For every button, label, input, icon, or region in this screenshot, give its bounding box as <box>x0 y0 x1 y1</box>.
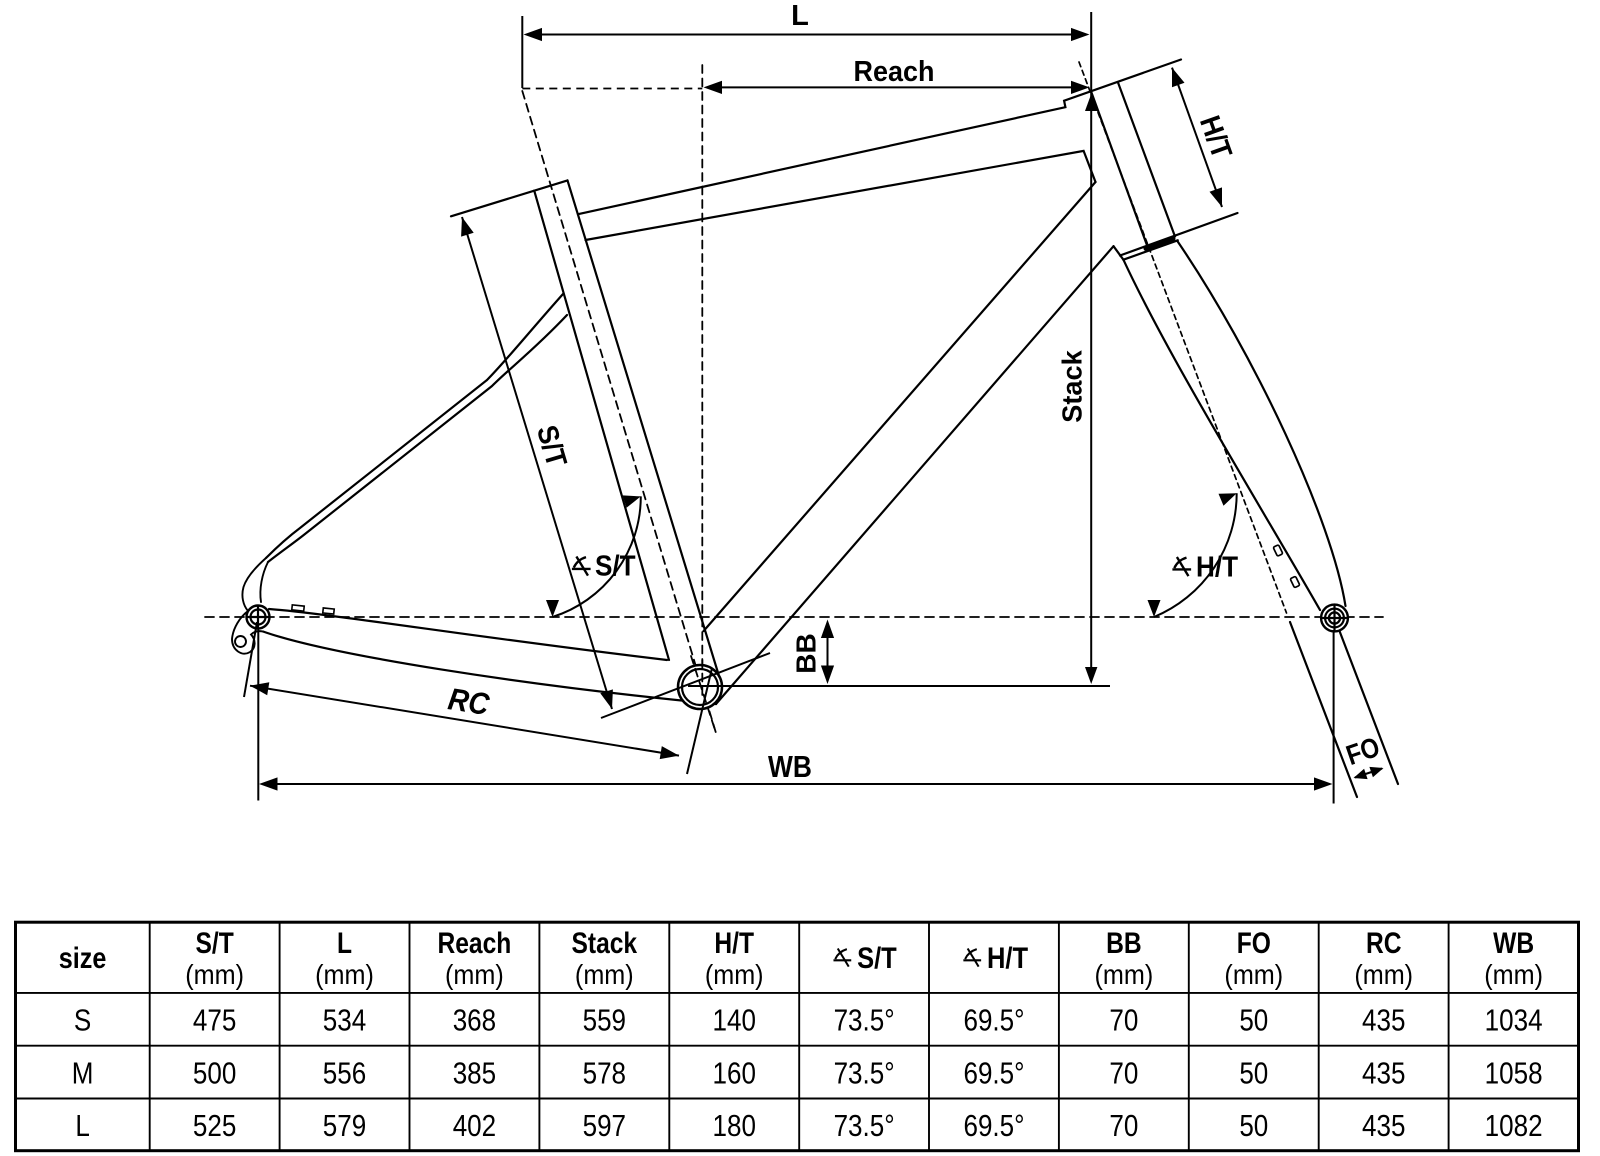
svg-text:Stack: Stack <box>1056 350 1087 423</box>
svg-text:Reach: Reach <box>854 55 935 87</box>
svg-text:BB: BB <box>1106 926 1142 960</box>
svg-text:FO: FO <box>1237 926 1271 960</box>
svg-text:559: 559 <box>583 1003 626 1038</box>
svg-text:WB: WB <box>768 750 812 784</box>
svg-text:(mm): (mm) <box>705 959 764 991</box>
svg-text:(mm): (mm) <box>1095 959 1154 991</box>
svg-text:1058: 1058 <box>1485 1056 1543 1091</box>
svg-text:RC: RC <box>446 682 492 723</box>
svg-text:368: 368 <box>453 1003 496 1038</box>
svg-text:(mm): (mm) <box>1224 959 1283 991</box>
svg-text:70: 70 <box>1109 1109 1138 1144</box>
svg-text:Stack: Stack <box>571 926 637 960</box>
svg-text:70: 70 <box>1109 1056 1138 1091</box>
svg-text:S/T: S/T <box>595 549 636 582</box>
svg-text:73.5°: 73.5° <box>834 1003 895 1038</box>
svg-text:S/T: S/T <box>857 941 897 974</box>
svg-text:H/T: H/T <box>987 941 1028 974</box>
svg-text:RC: RC <box>1366 926 1402 960</box>
svg-text:(mm): (mm) <box>575 959 634 991</box>
svg-text:1034: 1034 <box>1485 1003 1543 1038</box>
svg-text:L: L <box>337 926 352 960</box>
svg-text:578: 578 <box>583 1056 626 1091</box>
svg-text:435: 435 <box>1362 1056 1405 1091</box>
svg-text:180: 180 <box>712 1109 755 1144</box>
svg-text:(mm): (mm) <box>315 959 374 991</box>
svg-text:(mm): (mm) <box>185 959 244 991</box>
svg-text:50: 50 <box>1239 1109 1268 1144</box>
svg-text:534: 534 <box>323 1003 366 1038</box>
svg-text:Reach: Reach <box>437 926 511 960</box>
svg-text:(mm): (mm) <box>445 959 504 991</box>
svg-text:435: 435 <box>1362 1109 1405 1144</box>
svg-text:BB: BB <box>791 633 822 673</box>
svg-text:size: size <box>59 941 107 975</box>
svg-text:L: L <box>75 1109 89 1144</box>
svg-text:385: 385 <box>453 1056 496 1091</box>
svg-text:73.5°: 73.5° <box>834 1109 895 1144</box>
svg-text:69.5°: 69.5° <box>963 1056 1024 1091</box>
svg-text:H/T: H/T <box>714 926 754 960</box>
svg-text:M: M <box>72 1056 94 1091</box>
svg-text:500: 500 <box>193 1056 236 1091</box>
svg-text:69.5°: 69.5° <box>963 1109 1024 1144</box>
svg-text:597: 597 <box>583 1109 626 1144</box>
svg-text:H/T: H/T <box>1196 550 1238 583</box>
svg-text:556: 556 <box>323 1056 366 1091</box>
svg-text:70: 70 <box>1109 1003 1138 1038</box>
svg-text:140: 140 <box>712 1003 755 1038</box>
svg-text:579: 579 <box>323 1109 366 1144</box>
svg-text:S/T: S/T <box>195 926 233 960</box>
svg-text:S: S <box>74 1003 91 1038</box>
svg-text:475: 475 <box>193 1003 236 1038</box>
svg-text:402: 402 <box>453 1109 496 1144</box>
svg-text:73.5°: 73.5° <box>834 1056 895 1091</box>
svg-text:(mm): (mm) <box>1484 959 1543 991</box>
svg-text:50: 50 <box>1239 1003 1268 1038</box>
svg-text:50: 50 <box>1239 1056 1268 1091</box>
svg-text:435: 435 <box>1362 1003 1405 1038</box>
svg-text:1082: 1082 <box>1485 1109 1543 1144</box>
svg-text:69.5°: 69.5° <box>963 1003 1024 1038</box>
svg-text:(mm): (mm) <box>1354 959 1413 991</box>
svg-text:525: 525 <box>193 1109 236 1144</box>
svg-text:WB: WB <box>1493 926 1534 960</box>
svg-text:L: L <box>791 0 809 32</box>
svg-text:160: 160 <box>712 1056 755 1091</box>
